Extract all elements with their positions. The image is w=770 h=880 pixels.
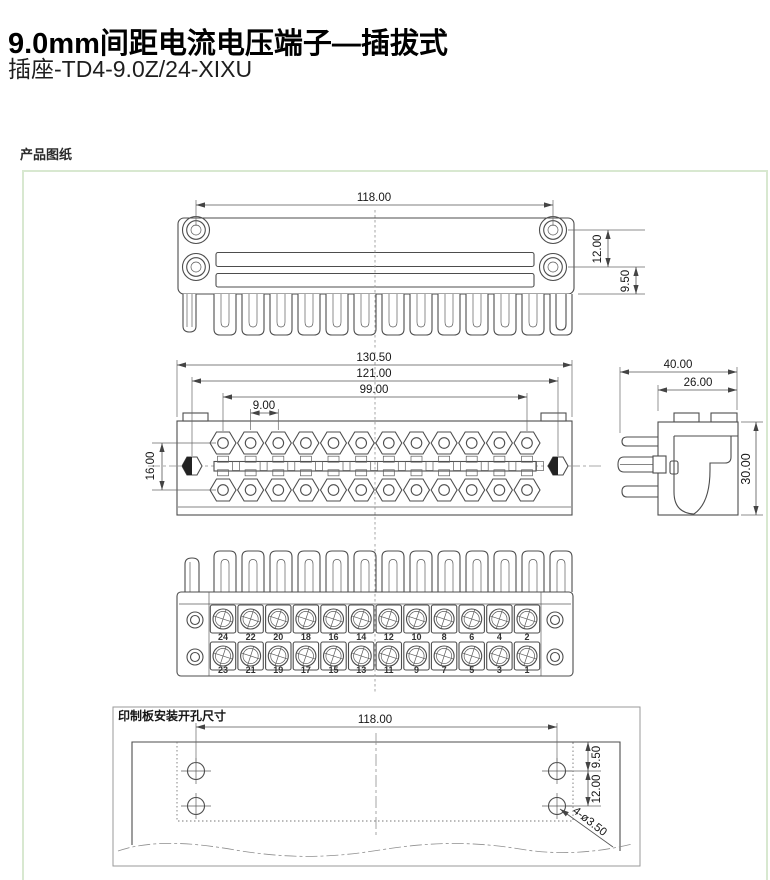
terminal-number: 6 [469,632,474,642]
dim-top-hole-spacing: 12.00 [592,235,604,264]
terminal-number: 9 [414,665,419,675]
terminal-number: 16 [328,632,338,642]
terminal-number: 19 [273,665,283,675]
pcb-cutout-drawing: 印制板安装开孔尺寸 118.00 9.50 12.00 4-ø3.50 [113,707,640,866]
terminal-number: 20 [273,632,283,642]
dim-front-flange-span: 121.00 [356,368,391,380]
terminal-number: 1 [524,665,529,675]
terminal-number: 5 [469,665,474,675]
dim-side-height: 30.00 [739,453,753,484]
terminal-number: 23 [218,665,228,675]
rear-view-drawing: 24 22 20 18 16 14 12 10 8 6 4 2 23 21 19… [177,544,573,692]
terminal-number: 3 [497,665,502,675]
terminal-number: 4 [497,632,502,642]
terminal-number: 18 [301,632,311,642]
dim-pcb-hole-span: 118.00 [358,714,392,726]
dim-pcb-hole-edge: 9.50 [591,746,603,768]
terminal-number: 2 [524,632,529,642]
terminal-number: 11 [384,665,394,675]
terminal-number: 14 [356,632,366,642]
terminal-number: 21 [246,665,256,675]
product-page: { "header": { "title": "9.0mm间距电流电压端子—插拔… [0,0,770,880]
front-view-drawing: 130.50 121.00 99.00 9.00 16.00 [145,352,602,542]
dim-top-hole-edge: 9.50 [620,270,632,292]
terminal-number: 15 [328,665,338,675]
dim-front-row-spacing: 16.00 [145,452,157,481]
terminal-number: 10 [411,632,421,642]
terminal-number: 17 [301,665,311,675]
top-view-drawing: 118.00 12.00 9.50 [178,192,645,350]
dim-front-terminal-span: 99.00 [360,384,389,396]
side-view-drawing: 40.00 26.00 30.00 [618,359,763,515]
dim-side-overall-depth: 40.00 [664,359,693,371]
pcb-view-label: 印制板安装开孔尺寸 [118,708,226,723]
dim-front-pitch: 9.00 [253,400,275,412]
terminal-number: 24 [218,632,228,642]
terminal-number: 13 [356,665,366,675]
terminal-number: 8 [442,632,447,642]
dim-front-overall: 130.50 [356,352,391,364]
terminal-number: 22 [246,632,256,642]
technical-drawing: 118.00 12.00 9.50 [0,0,770,880]
dim-pcb-hole-callout: 4-ø3.50 [570,805,609,839]
dim-pcb-hole-spacing: 12.00 [591,775,603,804]
terminal-number: 7 [442,665,447,675]
dim-top-overall-width: 118.00 [357,192,391,204]
terminal-number: 12 [384,632,394,642]
dim-side-body-depth: 26.00 [684,377,713,389]
